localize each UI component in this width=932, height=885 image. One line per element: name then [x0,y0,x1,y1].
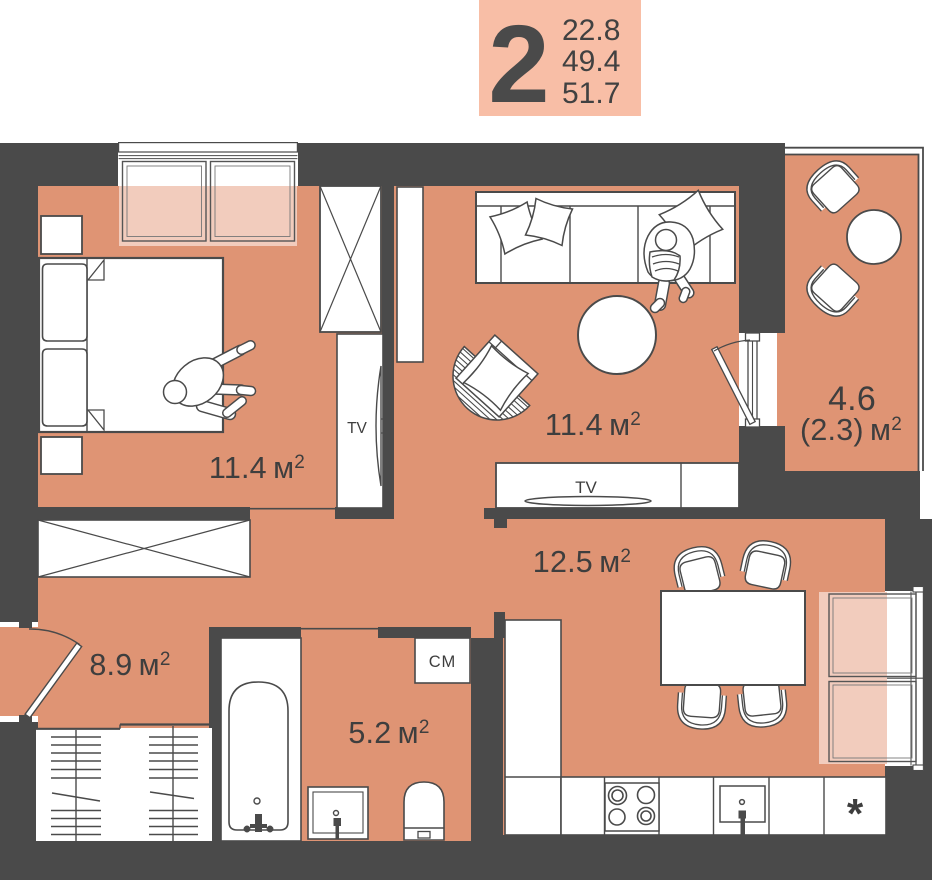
svg-text:11.4 м2: 11.4 м2 [545,408,641,442]
svg-text:5.2 м2: 5.2 м2 [348,716,429,750]
svg-text:51.7: 51.7 [562,77,620,110]
svg-text:11.4 м2: 11.4 м2 [209,451,305,485]
svg-text:22.8: 22.8 [562,14,620,47]
svg-text:*: * [847,790,864,837]
svg-text:(2.3) м2: (2.3) м2 [800,413,902,447]
svg-text:49.4: 49.4 [562,45,620,78]
svg-text:TV: TV [347,420,367,437]
svg-text:TV: TV [575,478,597,497]
svg-text:8.9 м2: 8.9 м2 [89,648,170,682]
svg-text:2: 2 [488,3,549,126]
svg-text:12.5 м2: 12.5 м2 [533,545,631,579]
svg-text:СМ: СМ [429,653,456,671]
